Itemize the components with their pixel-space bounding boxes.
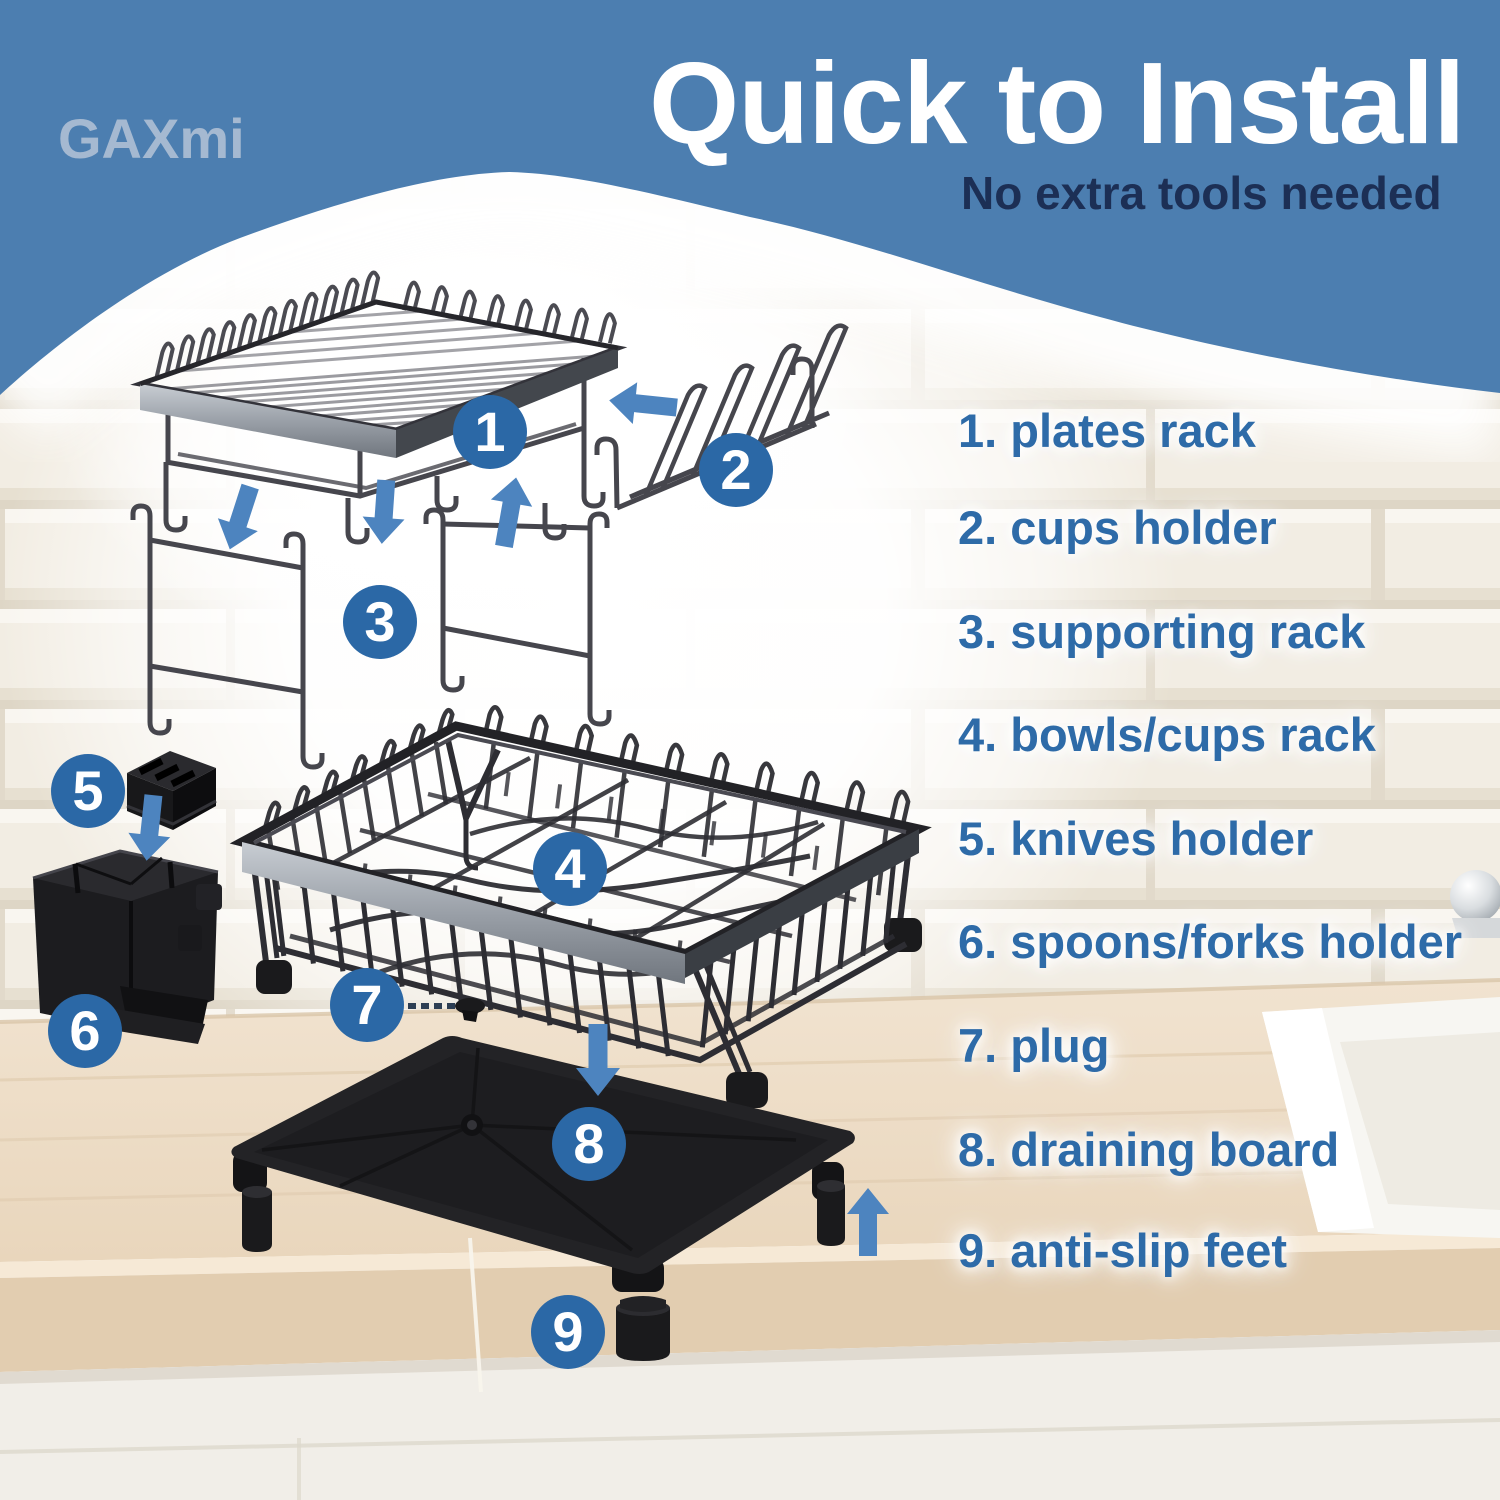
- svg-text:2: 2: [720, 438, 751, 501]
- svg-text:8: 8: [573, 1112, 604, 1175]
- svg-text:5: 5: [72, 759, 103, 822]
- svg-text:1: 1: [474, 400, 505, 463]
- svg-text:9: 9: [552, 1300, 583, 1363]
- svg-text:6: 6: [69, 999, 100, 1062]
- svg-text:4: 4: [554, 837, 585, 900]
- svg-text:7: 7: [351, 973, 382, 1036]
- svg-text:3: 3: [364, 590, 395, 653]
